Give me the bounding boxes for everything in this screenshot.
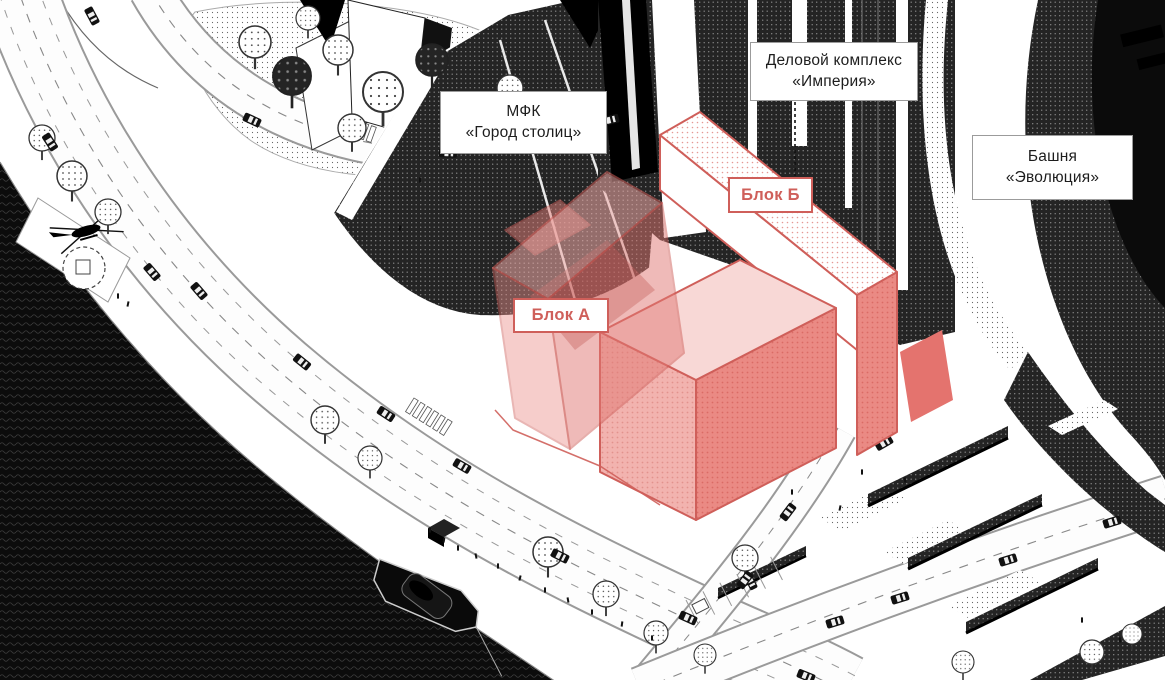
label-block-a: Блок А xyxy=(513,298,609,333)
label-line: Блок Б xyxy=(741,186,800,205)
label-line: «Город столиц» xyxy=(466,123,582,143)
label-line: «Империя» xyxy=(792,72,876,92)
label-line: Деловой комплекс xyxy=(766,51,902,71)
label-line: «Эволюция» xyxy=(1006,168,1099,188)
label-evolution: Башня «Эволюция» xyxy=(972,135,1133,200)
label-line: Башня xyxy=(1028,147,1077,167)
label-city-of-capitals: МФК «Город столиц» xyxy=(440,91,607,154)
site-plan-illustration: МФК «Город столиц» Деловой комплекс «Имп… xyxy=(0,0,1165,680)
label-block-b: Блок Б xyxy=(728,177,813,213)
label-line: МФК xyxy=(506,102,540,122)
label-line: Блок А xyxy=(532,306,591,325)
label-imperia: Деловой комплекс «Империя» xyxy=(750,42,918,101)
